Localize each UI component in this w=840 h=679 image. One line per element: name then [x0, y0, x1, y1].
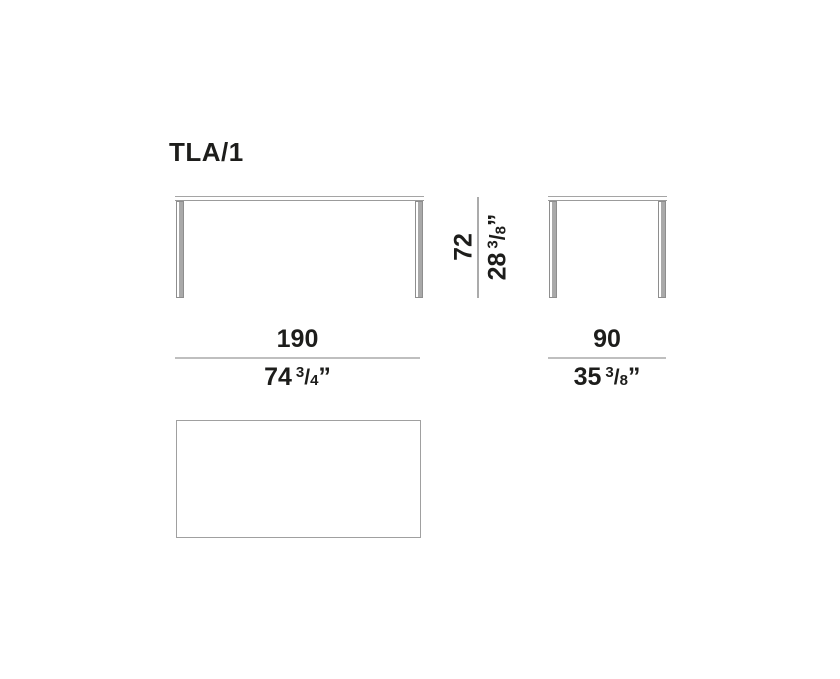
front-tabletop	[175, 196, 424, 201]
side-leg-left	[549, 201, 557, 298]
width-inch-numerator: 3	[296, 364, 304, 381]
width-inch-mark: ”	[318, 363, 331, 391]
height-inch-mark: ”	[484, 214, 512, 227]
height-metric-label: 72	[452, 233, 477, 261]
product-code: TLA/1	[169, 139, 244, 165]
width-dimension: 190 743/4”	[175, 327, 420, 390]
width-metric-label: 190	[175, 327, 420, 357]
depth-imperial-label: 353/8”	[548, 359, 666, 390]
height-inch-slash: /	[487, 234, 510, 240]
depth-inch-numerator: 3	[605, 364, 613, 381]
front-leg-left	[176, 201, 184, 298]
plan-view	[176, 420, 421, 538]
front-leg-right	[415, 201, 423, 298]
height-cm-value: 72	[450, 233, 478, 261]
height-inch-denominator: 8	[493, 226, 510, 234]
depth-inch-denominator: 8	[620, 372, 628, 389]
dimension-drawing-page: TLA/1 72 283/8” 190 743/4” 90 353/8”	[0, 0, 840, 679]
width-inch-whole: 74	[264, 363, 292, 391]
depth-dimension: 90 353/8”	[548, 327, 666, 390]
depth-inch-whole: 35	[574, 363, 602, 391]
depth-inch-mark: ”	[628, 363, 641, 391]
side-tabletop	[548, 196, 667, 201]
width-imperial-label: 743/4”	[175, 359, 420, 390]
side-view	[548, 196, 667, 298]
height-inch-numerator: 3	[485, 240, 502, 248]
depth-metric-label: 90	[548, 327, 666, 357]
side-leg-right	[658, 201, 666, 298]
height-inch-whole: 28	[484, 253, 512, 281]
height-imperial-label: 283/8”	[486, 214, 511, 281]
front-view	[175, 196, 424, 298]
